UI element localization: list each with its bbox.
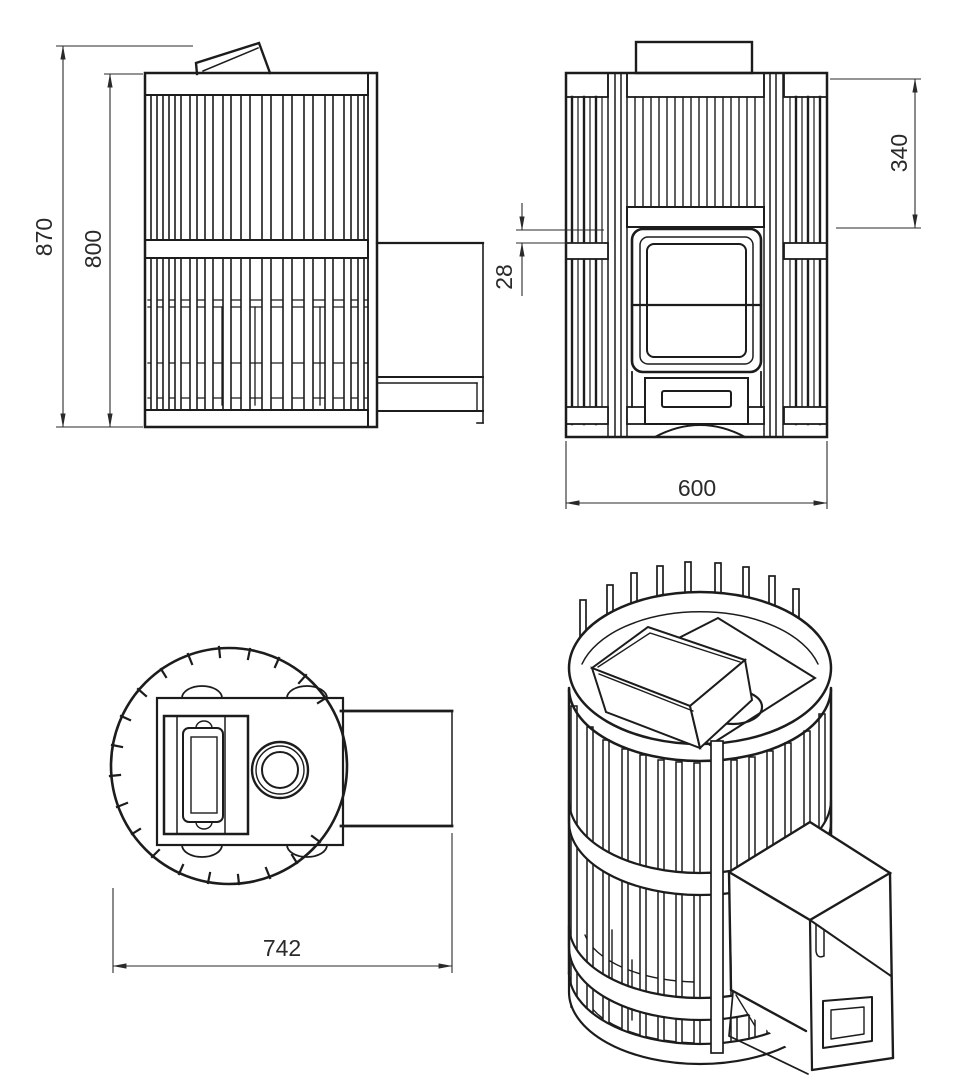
dim-label-600: 600: [678, 475, 716, 501]
dimension-800: [104, 74, 143, 427]
dim-label-800: 800: [80, 230, 106, 268]
side-middle-band: [145, 240, 368, 258]
dim-label-28: 28: [491, 264, 517, 290]
front-plate-band: [627, 207, 764, 227]
front-slats-right: [790, 97, 820, 424]
side-top-band: [145, 73, 368, 95]
drawing-sheet: 870 800 340 28 600 742: [0, 0, 968, 1080]
dim-label-340: 340: [886, 134, 912, 172]
side-view: [145, 43, 483, 427]
side-firebox-tunnel: [377, 243, 483, 423]
top-chimney-collar: [252, 742, 308, 798]
side-bottom-band: [145, 410, 368, 427]
top-steam-chamber: [164, 716, 248, 834]
front-mid-band-right: [784, 243, 827, 259]
top-cage-circle: [111, 648, 347, 884]
top-plate: [157, 698, 343, 845]
front-slats-left: [572, 97, 602, 424]
top-cage-slat-ticks: [110, 647, 326, 884]
front-chimney: [636, 42, 752, 73]
isometric-view: [569, 562, 893, 1074]
side-chimney-lid: [196, 43, 270, 74]
dimension-870: [56, 46, 193, 427]
dim-label-742: 742: [263, 935, 301, 961]
top-corner-post-bumps: [182, 686, 327, 857]
front-slats-center: [635, 97, 755, 207]
top-view: [110, 647, 452, 884]
dim-label-870: 870: [31, 218, 57, 256]
iso-front-post: [711, 741, 723, 1053]
front-mid-band-left: [566, 243, 608, 259]
front-ash-drawer: [645, 378, 748, 424]
front-base-arch: [655, 425, 745, 437]
top-firebox-tunnel: [341, 711, 452, 826]
front-view: [566, 42, 827, 437]
technical-drawing-canvas: 870 800 340 28 600 742: [0, 0, 968, 1080]
